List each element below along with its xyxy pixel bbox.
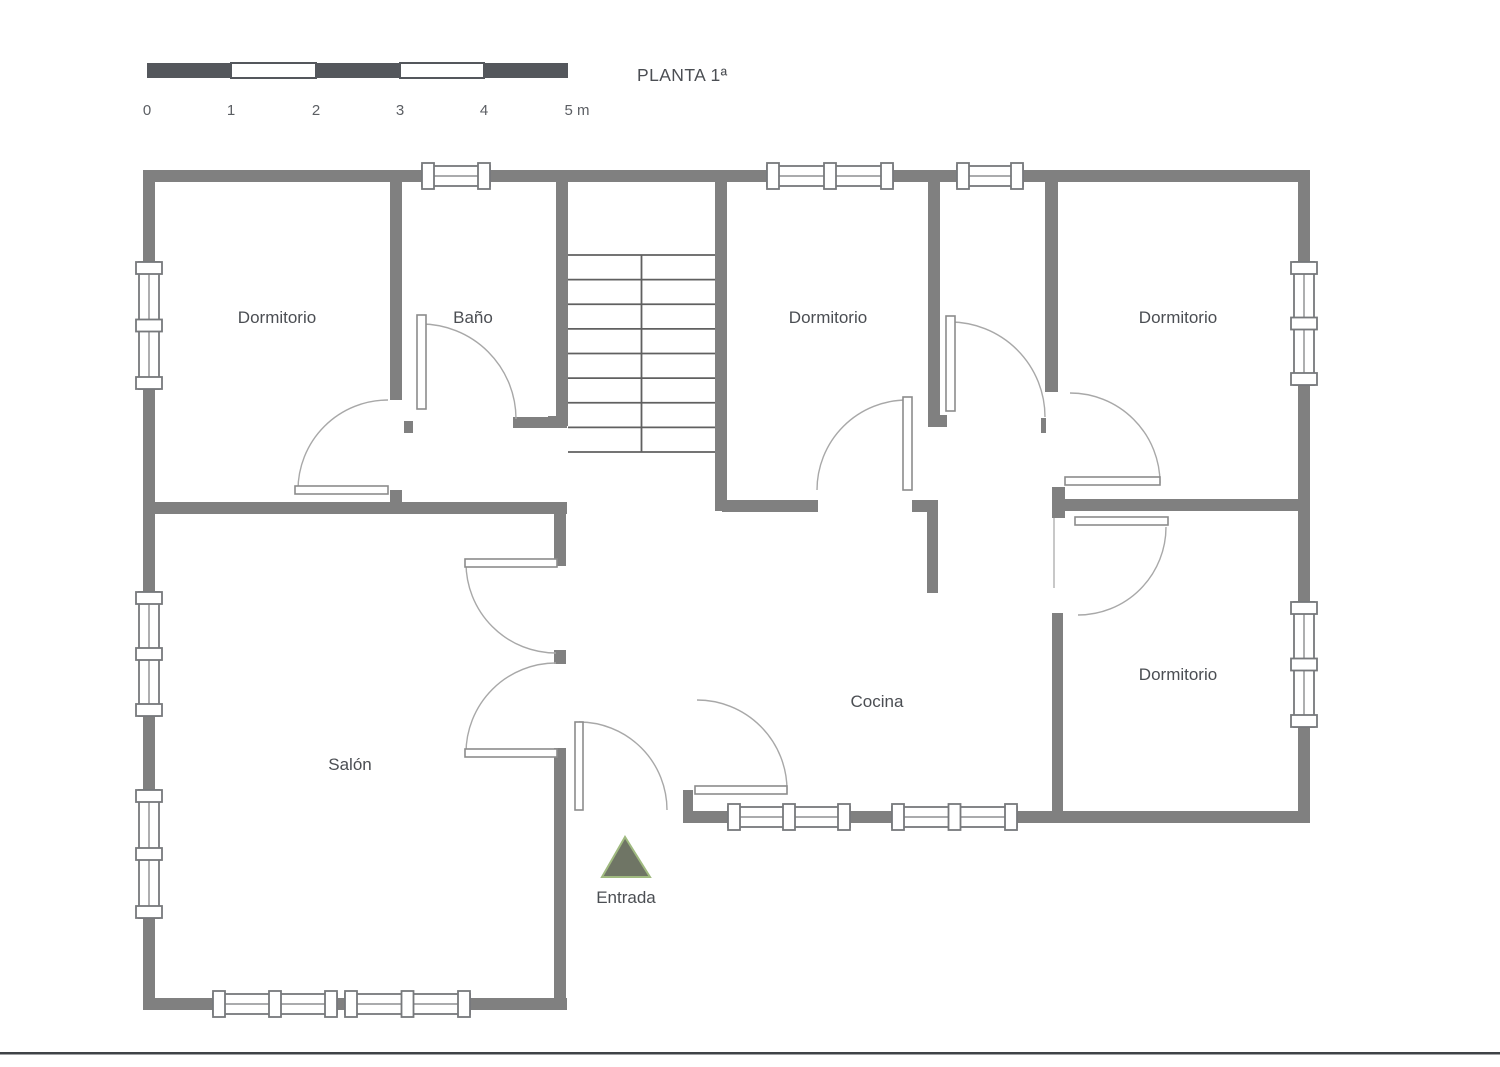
wall [554,650,566,664]
wall [928,415,947,427]
door-dormitorio-1-swing-arc [298,400,388,490]
window-cap [136,648,162,660]
window-cap [783,804,795,830]
door-entrada-swing-arc [579,722,667,810]
window-cap [1291,373,1317,385]
plan-title: PLANTA 1ª [637,65,728,85]
wall [556,170,568,426]
room-label-dormitorio-4: Dormitorio [1139,665,1217,684]
scale-tick-label: 4 [480,102,488,119]
window-cap [136,704,162,716]
door-cocina-swing-arc [697,700,787,790]
door-salon-top-leaf [465,559,557,567]
window-cap [136,848,162,860]
scale-tick-label: 3 [396,102,404,119]
door-dormitorio-3-leaf [1065,477,1160,485]
wall [683,790,693,811]
door-salon-bottom-swing-arc [466,663,556,753]
scale-segment [231,63,316,78]
wall [927,512,938,593]
scale-segment [400,63,484,78]
floorplan-page: 012345 m PLANTA 1ª DormitorioBañoDormito… [0,0,1500,1067]
wall [1041,418,1046,433]
door-dormitorio-3-swing-arc [1070,393,1160,483]
scale-segment [316,63,400,78]
window-cap [881,163,893,189]
window-cap [949,804,961,830]
walls [143,170,1310,1010]
window-cap [1005,804,1017,830]
entrada-label: Entrada [596,888,656,907]
window-cap [136,262,162,274]
window-cap [422,163,434,189]
window-cap [892,804,904,830]
window-cap [1291,262,1317,274]
door-cocina-leaf [695,786,787,794]
floorplan-svg: 012345 m PLANTA 1ª DormitorioBañoDormito… [0,0,1500,1067]
footer-rule [0,1052,1500,1055]
window-cap [402,991,414,1017]
wall [715,170,727,511]
door-aseo-swing-arc [950,322,1045,417]
scale-segment [484,63,568,78]
window-cap [478,163,490,189]
wall [928,170,940,421]
room-label-salon: Salón [328,755,371,774]
wall [143,502,567,514]
window-cap [824,163,836,189]
scale-tick-label: 0 [143,102,151,119]
doors [295,315,1168,810]
wall [554,502,566,566]
wall [404,421,413,433]
window-cap [1291,659,1317,671]
scale-tick-label: 5 m [564,102,589,119]
door-dormitorio-2-leaf [903,397,912,490]
room-label-bano: Baño [453,308,493,327]
entrance-marker: Entrada [596,837,656,907]
wall [548,416,556,426]
window-cap [136,790,162,802]
window-cap [767,163,779,189]
wall [390,170,402,400]
wall [1053,499,1310,511]
door-dormitorio-4-swing-arc [1078,527,1166,615]
entrada-triangle [602,837,650,877]
wall [554,748,566,1010]
wall [722,500,818,512]
window-cap [838,804,850,830]
window-cap [728,804,740,830]
door-salon-bottom-leaf [465,749,557,757]
room-label-dormitorio-1: Dormitorio [238,308,316,327]
door-dormitorio-2-swing-arc [817,400,907,490]
window-cap [325,991,337,1017]
scale-tick-label: 2 [312,102,320,119]
room-labels: DormitorioBañoDormitorioDormitorioDormit… [238,308,1217,774]
room-label-dormitorio-2: Dormitorio [789,308,867,327]
window-cap [1291,318,1317,330]
wall [1052,613,1063,811]
window-cap [136,377,162,389]
window-cap [1291,602,1317,614]
window-cap [213,991,225,1017]
window-cap [1011,163,1023,189]
door-bano-swing-arc [421,324,516,419]
door-dormitorio-1-leaf [295,486,388,494]
wall [1045,170,1058,392]
window-cap [136,320,162,332]
wall [912,500,938,512]
window-cap [136,592,162,604]
door-entrada-leaf [575,722,583,810]
window-cap [957,163,969,189]
window-cap [345,991,357,1017]
window-cap [1291,715,1317,727]
room-label-cocina: Cocina [851,692,904,711]
window-cap [269,991,281,1017]
door-salon-top-swing-arc [466,563,556,653]
window-cap [458,991,470,1017]
door-aseo-leaf [946,316,955,411]
door-dormitorio-4-leaf [1075,517,1168,525]
door-bano-leaf [417,315,426,409]
scale-tick-label: 1 [227,102,235,119]
stairs [568,255,715,452]
window-cap [136,906,162,918]
room-label-dormitorio-3: Dormitorio [1139,308,1217,327]
scale-segment [147,63,231,78]
scale-bar: 012345 m [143,63,590,119]
